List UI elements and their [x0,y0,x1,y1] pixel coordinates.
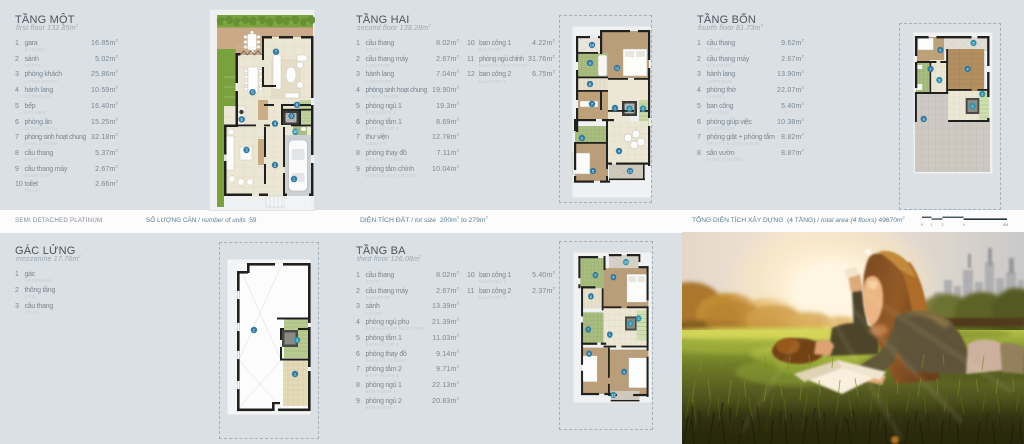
svg-text:2: 2 [971,103,973,108]
svg-text:8: 8 [588,352,590,356]
svg-text:0: 0 [921,223,923,227]
svg-text:4: 4 [963,223,965,227]
svg-text:3: 3 [637,317,639,321]
svg-text:10: 10 [590,43,595,48]
svg-text:1: 1 [981,91,983,96]
svg-text:7: 7 [929,66,931,71]
svg-text:1: 1 [608,333,610,337]
svg-text:5: 5 [594,273,596,277]
svg-text:8M: 8M [1003,223,1008,227]
svg-text:6: 6 [589,295,591,299]
svg-text:7: 7 [587,328,589,332]
svg-text:10: 10 [293,129,298,134]
svg-text:12: 12 [628,169,633,174]
svg-text:2: 2 [941,223,943,227]
svg-text:4: 4 [612,276,614,280]
svg-text:10: 10 [623,260,627,264]
svg-text:1: 1 [931,223,933,227]
svg-text:9: 9 [623,370,625,374]
svg-text:2: 2 [629,322,631,326]
svg-text:11: 11 [611,393,615,397]
